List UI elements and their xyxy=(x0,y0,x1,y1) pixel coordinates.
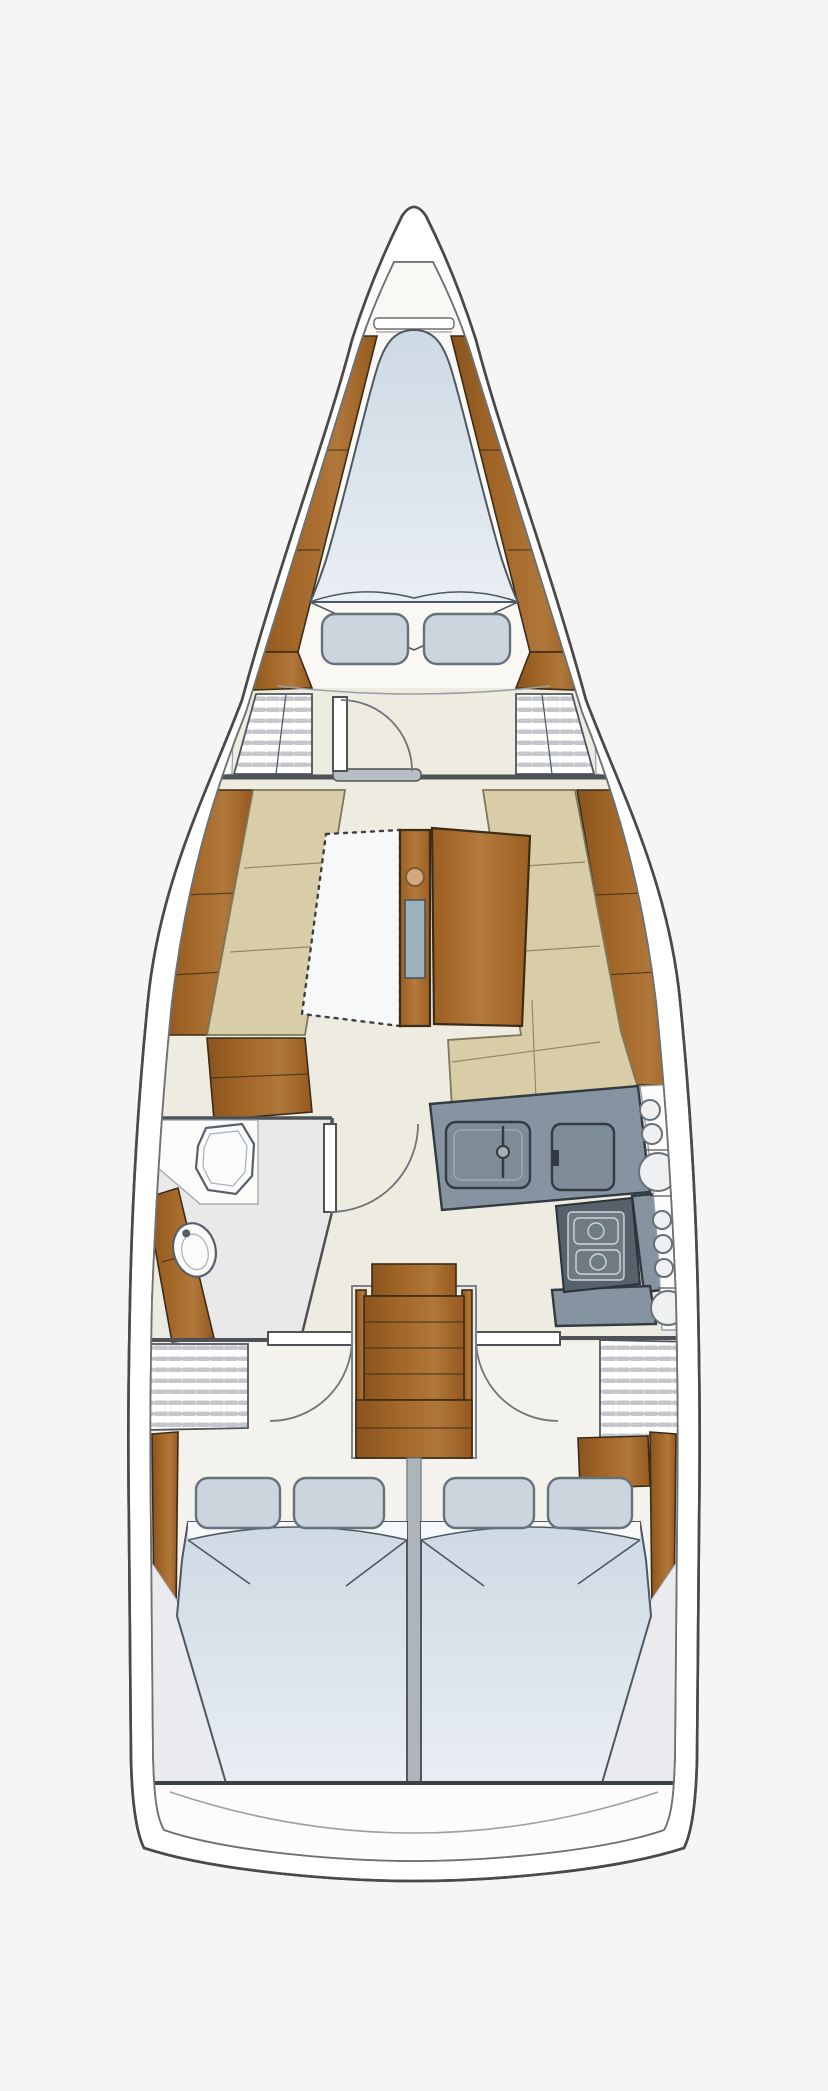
aft-berth-starboard xyxy=(421,1478,678,1783)
galley-fridge xyxy=(552,1124,614,1190)
aft-cabin-port-door xyxy=(268,1332,352,1345)
aft-locker-port xyxy=(140,1344,248,1430)
boat-floor-plan-svg xyxy=(0,0,828,2091)
forward-cabin-door xyxy=(333,697,347,771)
table-knob xyxy=(406,868,424,886)
table-bottle-slot xyxy=(405,900,425,978)
floor-plan-page xyxy=(0,0,828,2091)
aft-pillow-starboard-1 xyxy=(444,1478,534,1528)
head-door xyxy=(324,1124,336,1212)
aft-pillow-starboard-2 xyxy=(548,1478,632,1528)
step-bottom xyxy=(356,1400,472,1458)
aft-cabin-divider xyxy=(407,1458,421,1784)
v-berth-pillow-port xyxy=(322,614,408,664)
aft-pillow-port-1 xyxy=(196,1478,280,1528)
aft-berth-port xyxy=(150,1478,407,1783)
table-leaf-main xyxy=(432,828,530,1026)
v-berth-pillow-starboard xyxy=(424,614,510,664)
head-sink xyxy=(196,1124,254,1194)
step-top xyxy=(372,1264,456,1296)
salon-table xyxy=(400,828,530,1026)
aft-cabin-starboard-door xyxy=(476,1332,560,1345)
aft-pillow-port-2 xyxy=(294,1478,384,1528)
galley-stove xyxy=(556,1198,640,1292)
galley-sink xyxy=(446,1122,530,1188)
salon-wood-seat-port xyxy=(207,1038,312,1120)
faucet-icon xyxy=(497,1146,509,1158)
